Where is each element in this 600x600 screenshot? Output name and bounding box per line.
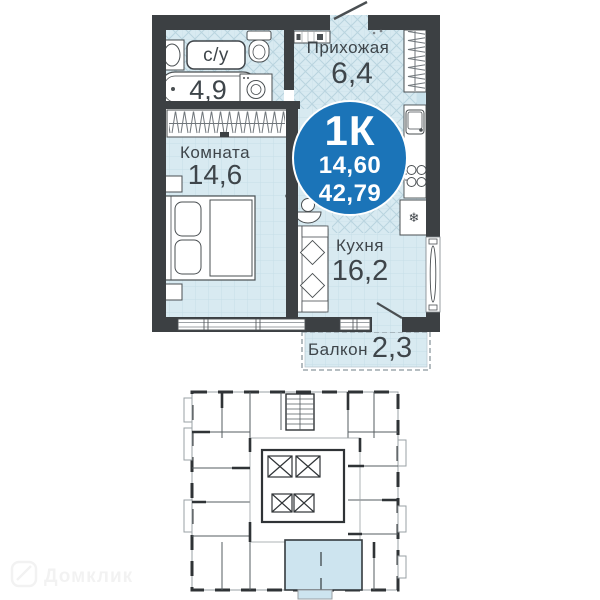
- apartment-plan: Балкон 2,3: [152, 2, 440, 370]
- badge-rooms: 1К: [325, 107, 376, 154]
- toilet-icon: [247, 31, 271, 62]
- radiator-icon: [430, 246, 436, 302]
- wardrobe-hallway-icon: [404, 30, 426, 92]
- highlighted-unit-balcony: [298, 590, 332, 599]
- kitchen-area: 16,2: [332, 255, 388, 287]
- highlighted-unit: [285, 540, 362, 599]
- floor-plan-image: Балкон 2,3: [0, 0, 600, 600]
- bathroom-label: с/у: [203, 45, 229, 66]
- fridge-icon: ❄: [400, 200, 428, 235]
- elevator-core: [262, 450, 344, 522]
- highlighted-unit-outline: [285, 540, 362, 590]
- hallway-label: Прихожая: [307, 38, 390, 57]
- bathroom-label-box: с/у: [187, 41, 245, 69]
- kitchen-window: [340, 319, 370, 330]
- balcony: Балкон 2,3: [302, 332, 430, 370]
- bathroom-wall: [284, 30, 294, 90]
- wardrobe-room-icon: [167, 110, 287, 137]
- bathroom-bottom-wall: [166, 101, 300, 109]
- stairs-icon: [286, 394, 314, 430]
- snowflake-icon: ❄: [409, 210, 420, 225]
- living-room-window: [178, 319, 305, 330]
- bathroom-area: 4,9: [189, 75, 227, 105]
- kitchen-sink-icon: [406, 110, 424, 134]
- watermark-text: Домклик: [44, 566, 133, 587]
- kitchen-side-window-radiator: [426, 237, 440, 312]
- apartment-badge: 1К 14,60 42,79: [293, 101, 407, 215]
- balcony-area: 2,3: [372, 332, 412, 364]
- hallway-area: 6,4: [331, 57, 373, 90]
- washing-machine-icon: [240, 74, 272, 105]
- badge-living-area: 14,60: [319, 152, 382, 179]
- kitchen-label: Кухня: [336, 236, 384, 255]
- balcony-door-opening: [372, 317, 402, 332]
- badge-total-area: 42,79: [319, 180, 382, 207]
- building-floor-plate: [184, 392, 406, 599]
- living-room-area: 14,6: [188, 159, 243, 190]
- balcony-label: Балкон: [308, 340, 368, 359]
